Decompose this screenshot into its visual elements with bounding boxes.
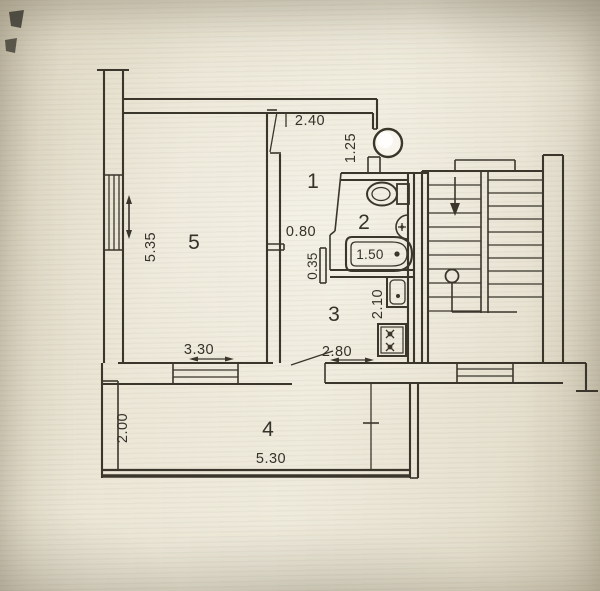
room-1-label: 1 [307, 170, 319, 193]
toilet-icon [367, 183, 409, 206]
dim-wall-stub-label: 0.35 [305, 252, 320, 279]
door-leaf-icon-living [270, 112, 277, 152]
dim-living-width-label: 3.30 [184, 342, 214, 358]
vent-shaft-icon [374, 129, 402, 157]
dim-entry-side-label: 1.25 [343, 133, 359, 163]
corner-sink-icon [396, 215, 408, 239]
room-4-label: 4 [262, 418, 274, 441]
dim-bathtub-label: 1.50 [356, 247, 383, 262]
stair-treads-right [488, 180, 543, 297]
dim-arrow-vertical [126, 195, 132, 239]
stairs [422, 155, 598, 391]
room-3-label: 3 [328, 303, 340, 326]
dim-living-height-label: 5.35 [143, 232, 159, 262]
balcony-rail [103, 470, 411, 476]
kitchen-sink-icon [387, 277, 408, 307]
drain-dot [394, 251, 399, 256]
balcony-partition [363, 384, 379, 470]
window-icon-living-side [104, 175, 123, 250]
dim-kitchen-width-label: 2.80 [322, 344, 352, 360]
stair-start-marker-icon [446, 270, 459, 313]
wall-living-bottom [103, 363, 292, 384]
outer-wall-top [123, 99, 377, 129]
window-icon-stair-landing [457, 363, 513, 383]
wall-party-stairwell [408, 171, 428, 364]
dim-balcony-depth-label: 2.00 [115, 413, 131, 443]
floor-plan: 2.40 1.25 5.35 0.80 0.35 1.50 2.10 2.80 … [0, 0, 600, 591]
room-5-label: 5 [188, 231, 200, 254]
dim-hall-top-label: 2.40 [295, 113, 325, 129]
dim-kitchen-depth-label: 2.10 [370, 289, 386, 319]
wall-kitchen-bottom [325, 363, 563, 383]
floor-plan-photo: 2.40 1.25 5.35 0.80 0.35 1.50 2.10 2.80 … [0, 0, 600, 591]
dim-hall-door-label: 0.80 [286, 224, 316, 240]
stove-icon [378, 324, 406, 356]
dimension-labels: 2.40 1.25 5.35 0.80 0.35 1.50 2.10 2.80 … [115, 112, 386, 467]
photo-artifact-mark [5, 10, 24, 53]
room-2-label: 2 [358, 211, 370, 234]
dim-balcony-width-label: 5.30 [256, 451, 286, 467]
entry-door-jamb [368, 157, 380, 173]
wall-living-hall [267, 110, 281, 363]
window-icon-living-balcony [173, 363, 238, 384]
stair-down-arrow-icon [450, 177, 460, 216]
